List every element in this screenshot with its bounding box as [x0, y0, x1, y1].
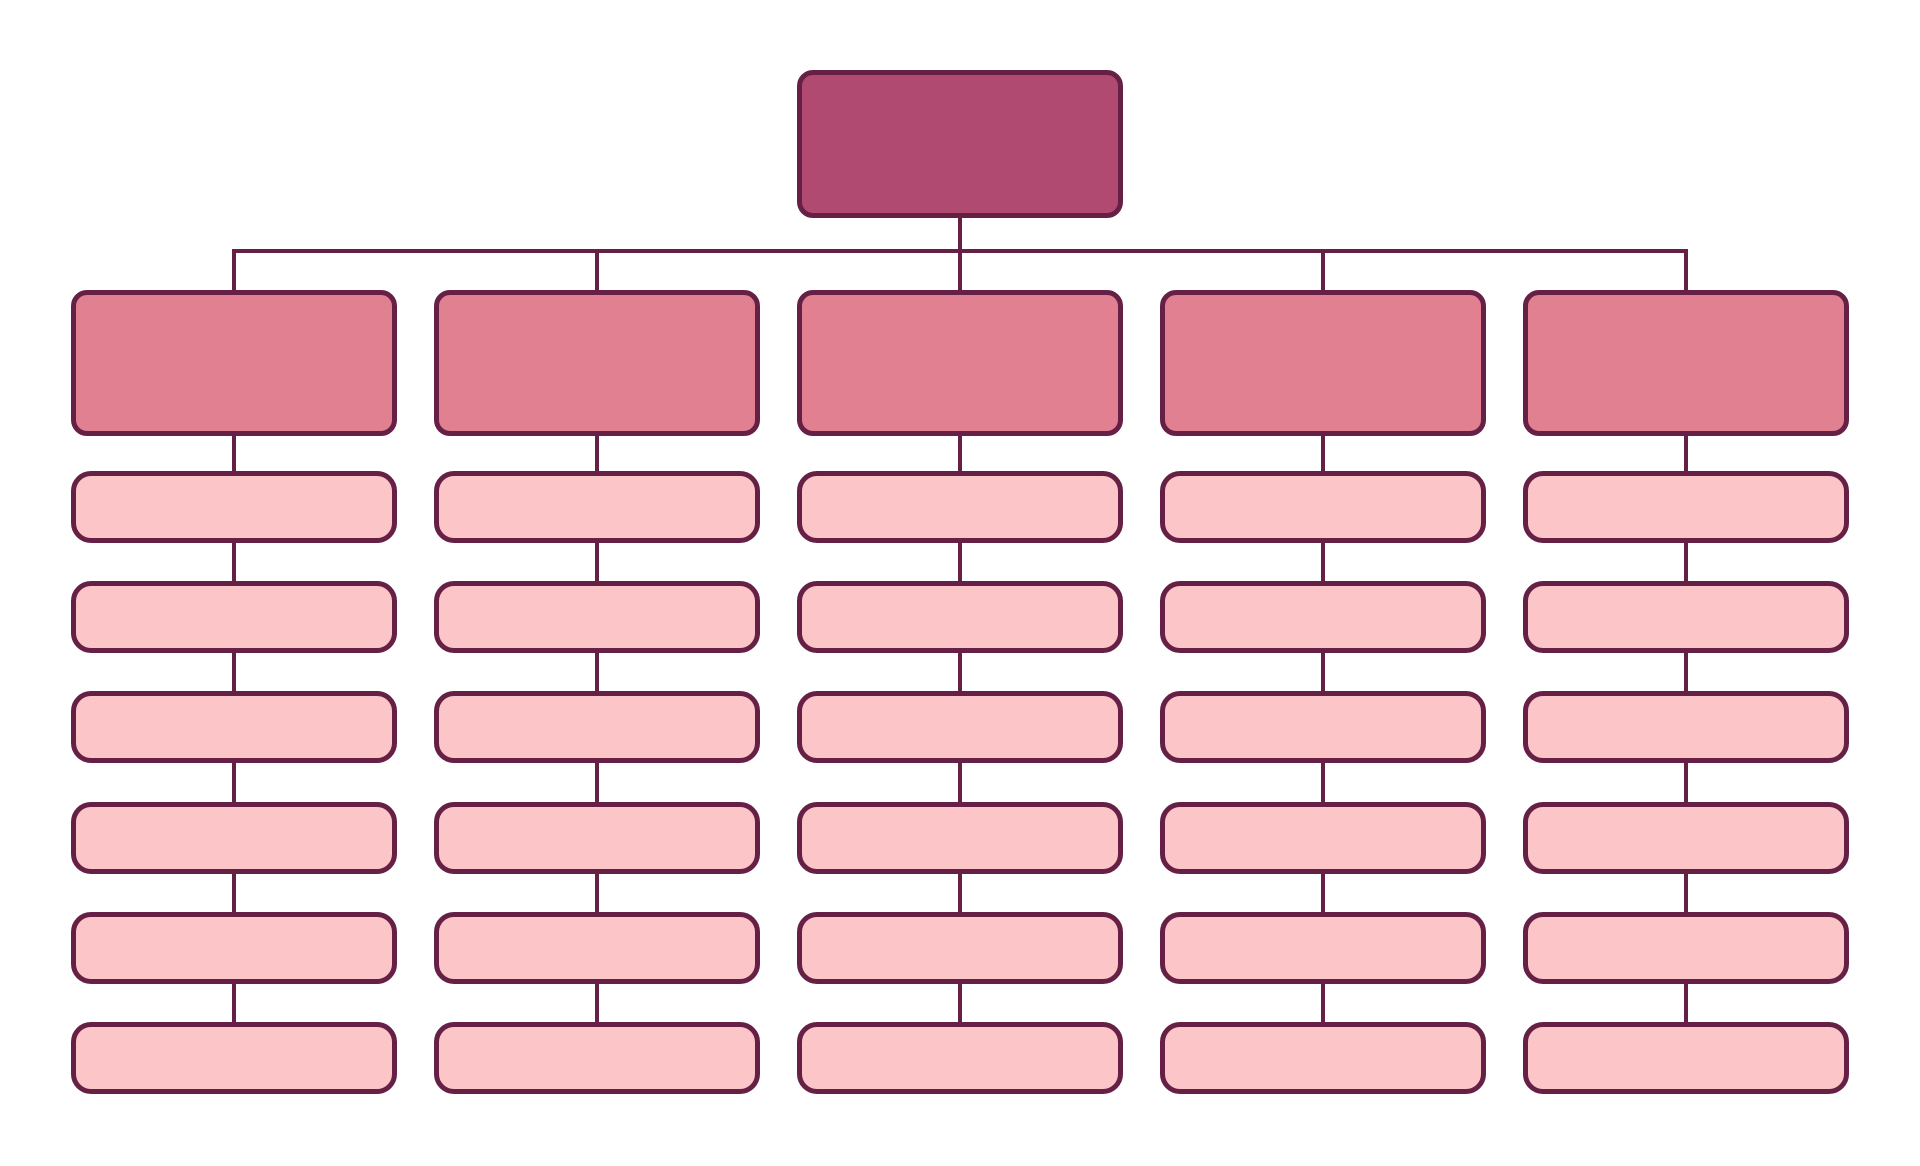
- connector-branch-stub-2: [595, 249, 599, 292]
- connector-child-stub-3-5: [958, 872, 962, 914]
- connector-child-stub-2-4: [595, 761, 599, 804]
- connector-branch-stub-4: [1321, 249, 1325, 292]
- org-node-root: [797, 70, 1123, 218]
- connector-child-stub-4-3: [1321, 651, 1325, 693]
- connector-child-stub-5-6: [1684, 982, 1688, 1024]
- org-node-child-3-1: [797, 471, 1123, 543]
- connector-child-stub-2-1: [595, 434, 599, 473]
- connector-child-stub-3-2: [958, 541, 962, 583]
- org-node-child-2-2: [434, 581, 760, 653]
- org-node-child-3-5: [797, 912, 1123, 984]
- org-node-child-1-5: [71, 912, 397, 984]
- org-node-child-4-5: [1160, 912, 1486, 984]
- org-node-branch-2: [434, 290, 760, 436]
- connector-child-stub-5-5: [1684, 872, 1688, 914]
- connector-child-stub-5-1: [1684, 434, 1688, 473]
- org-node-child-5-3: [1523, 691, 1849, 763]
- connector-branch-stub-1: [232, 249, 236, 292]
- connector-child-stub-4-1: [1321, 434, 1325, 473]
- org-node-child-4-3: [1160, 691, 1486, 763]
- connector-child-stub-4-4: [1321, 761, 1325, 804]
- org-node-branch-1: [71, 290, 397, 436]
- connector-child-stub-4-5: [1321, 872, 1325, 914]
- org-node-child-2-5: [434, 912, 760, 984]
- org-node-child-4-2: [1160, 581, 1486, 653]
- org-node-child-5-2: [1523, 581, 1849, 653]
- connector-child-stub-5-4: [1684, 761, 1688, 804]
- connector-child-stub-2-5: [595, 872, 599, 914]
- org-node-branch-4: [1160, 290, 1486, 436]
- connector-child-stub-1-3: [232, 651, 236, 693]
- connector-root-stub: [958, 216, 962, 292]
- org-node-child-1-3: [71, 691, 397, 763]
- connector-child-stub-3-4: [958, 761, 962, 804]
- org-node-child-4-4: [1160, 802, 1486, 874]
- org-node-child-3-4: [797, 802, 1123, 874]
- org-node-child-5-6: [1523, 1022, 1849, 1094]
- connector-child-stub-1-2: [232, 541, 236, 583]
- connector-child-stub-3-3: [958, 651, 962, 693]
- org-node-branch-5: [1523, 290, 1849, 436]
- connector-child-stub-1-6: [232, 982, 236, 1024]
- org-node-child-2-3: [434, 691, 760, 763]
- connector-branch-stub-5: [1684, 249, 1688, 292]
- org-node-child-3-6: [797, 1022, 1123, 1094]
- org-node-child-1-2: [71, 581, 397, 653]
- connector-child-stub-1-1: [232, 434, 236, 473]
- connector-child-stub-2-2: [595, 541, 599, 583]
- connector-child-stub-1-5: [232, 872, 236, 914]
- connector-child-stub-3-1: [958, 434, 962, 473]
- org-node-child-5-1: [1523, 471, 1849, 543]
- org-node-child-4-1: [1160, 471, 1486, 543]
- org-node-child-5-5: [1523, 912, 1849, 984]
- org-chart-canvas: [0, 0, 1920, 1166]
- org-node-child-5-4: [1523, 802, 1849, 874]
- org-node-child-4-6: [1160, 1022, 1486, 1094]
- connector-child-stub-1-4: [232, 761, 236, 804]
- connector-child-stub-4-6: [1321, 982, 1325, 1024]
- org-node-child-1-4: [71, 802, 397, 874]
- connector-child-stub-4-2: [1321, 541, 1325, 583]
- connector-child-stub-3-6: [958, 982, 962, 1024]
- org-node-branch-3: [797, 290, 1123, 436]
- org-node-child-3-2: [797, 581, 1123, 653]
- connector-child-stub-2-6: [595, 982, 599, 1024]
- org-node-child-3-3: [797, 691, 1123, 763]
- org-node-child-2-1: [434, 471, 760, 543]
- connector-child-stub-5-2: [1684, 541, 1688, 583]
- org-node-child-1-6: [71, 1022, 397, 1094]
- org-node-child-2-4: [434, 802, 760, 874]
- org-node-child-2-6: [434, 1022, 760, 1094]
- connector-child-stub-5-3: [1684, 651, 1688, 693]
- connector-child-stub-2-3: [595, 651, 599, 693]
- org-node-child-1-1: [71, 471, 397, 543]
